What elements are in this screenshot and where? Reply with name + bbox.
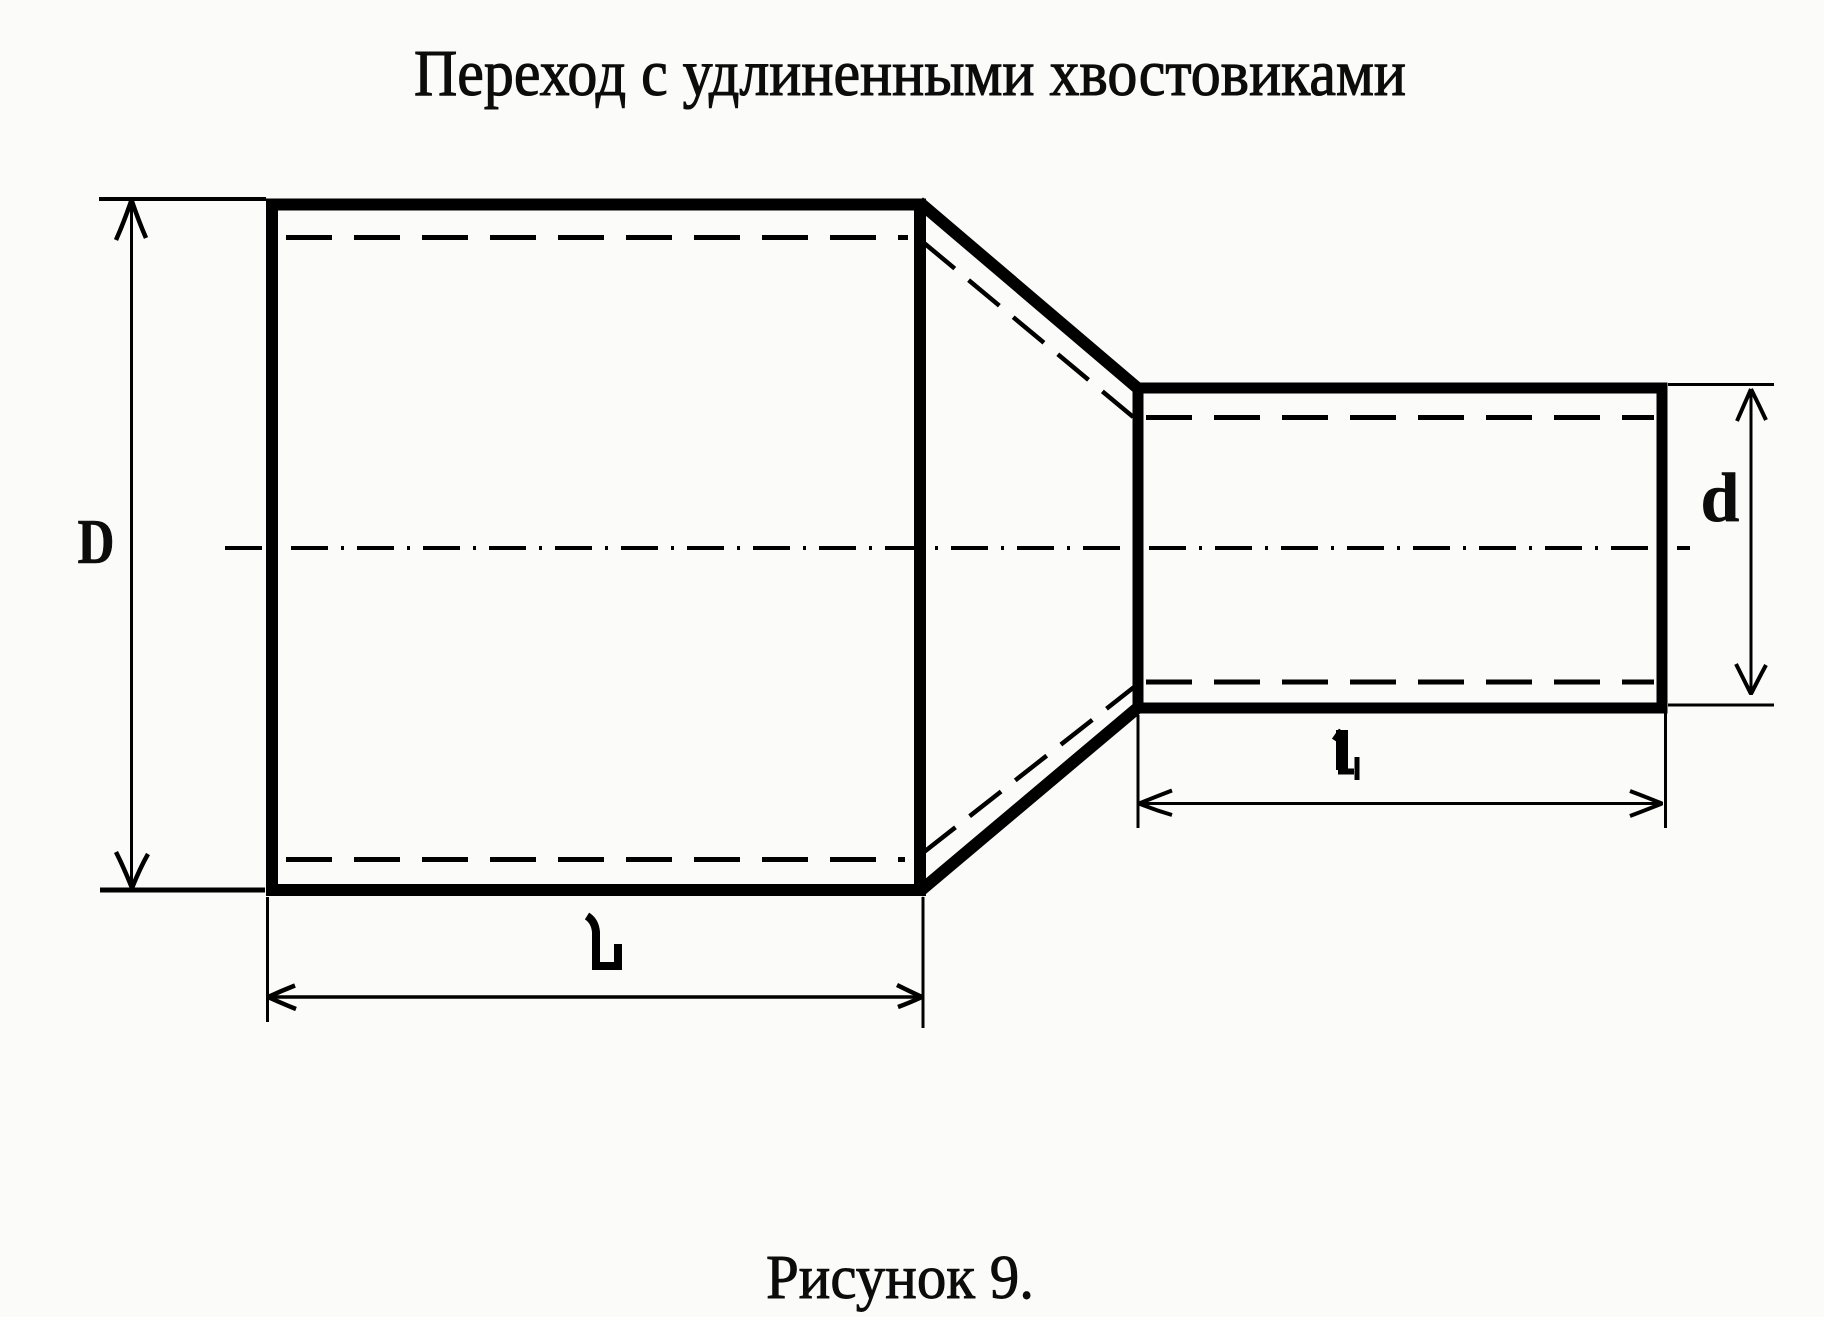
svg-text:d: d <box>1701 460 1740 537</box>
svg-text:Переход с удлиненными хвостови: Переход с удлиненными хвостовиками <box>414 37 1406 110</box>
svg-text:Рисунок 9.: Рисунок 9. <box>766 1244 1034 1312</box>
svg-text:D: D <box>78 506 115 577</box>
